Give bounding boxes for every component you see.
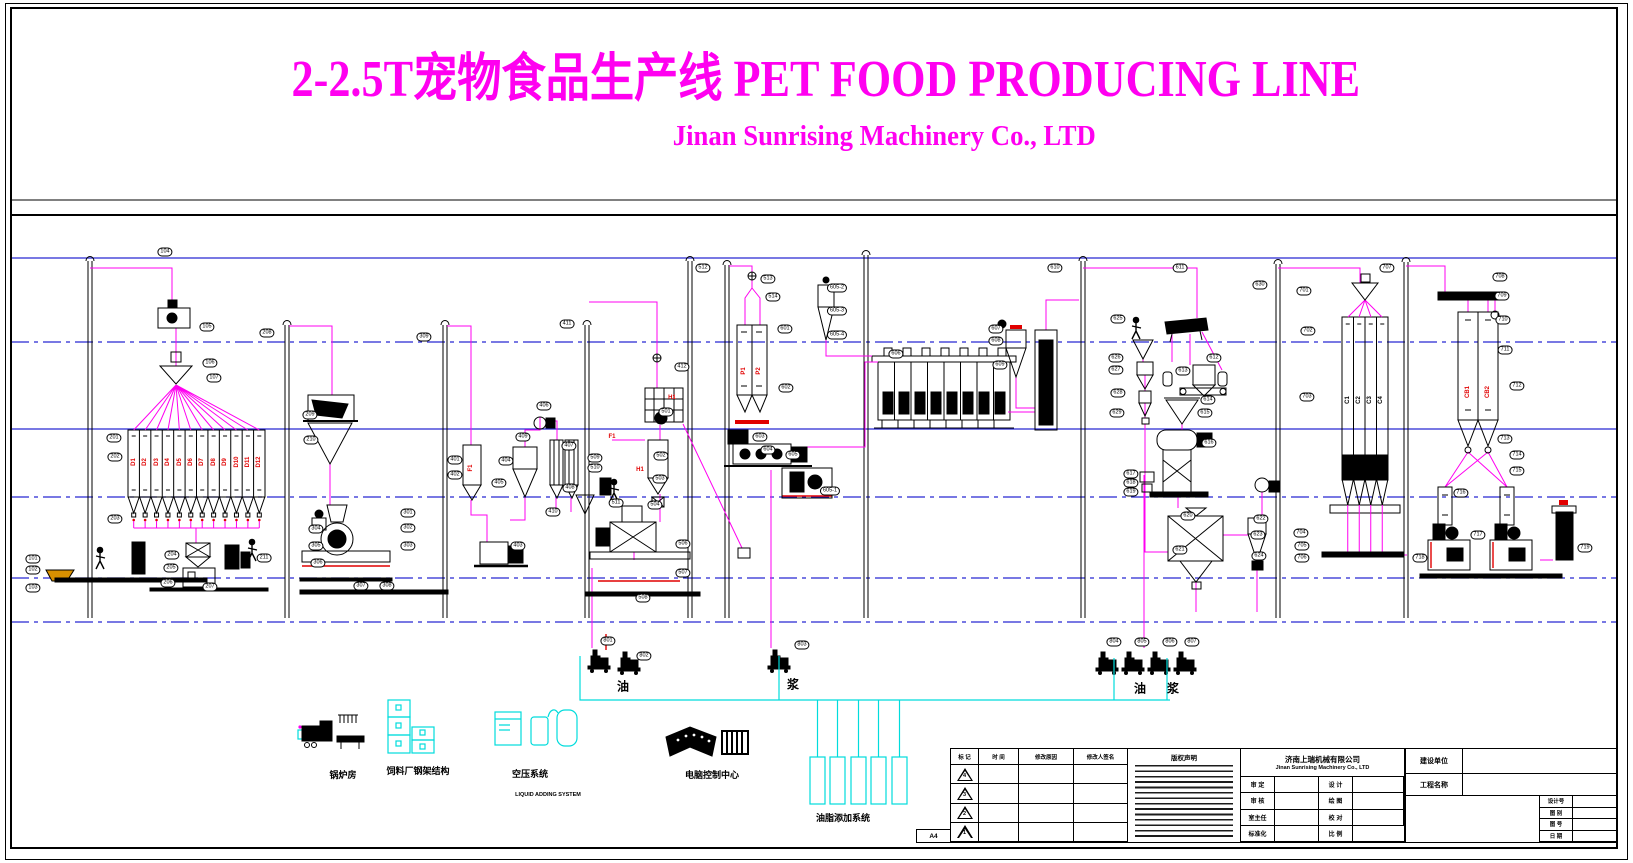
sign-value bbox=[1275, 810, 1319, 826]
rev-mark-cell: 3 bbox=[951, 784, 979, 803]
finished-packing-section bbox=[1322, 274, 1576, 578]
sign-value bbox=[1353, 793, 1404, 809]
info-value bbox=[1573, 831, 1616, 843]
rev-empty-cell bbox=[1019, 784, 1074, 803]
owner-label: 建设单位 bbox=[1406, 749, 1463, 774]
boiler-icon bbox=[302, 715, 364, 749]
company-name-en: Jinan Sunrising Machinery Co., LTD bbox=[1276, 765, 1370, 771]
rev-header: 标 记 bbox=[951, 749, 979, 765]
sign-label: 室主任 bbox=[1241, 810, 1275, 826]
liquid-pump bbox=[1122, 652, 1144, 675]
worker-figure bbox=[1132, 317, 1141, 339]
liquid-pump bbox=[588, 650, 610, 673]
sign-value bbox=[1353, 826, 1404, 842]
dryer-body bbox=[872, 348, 1016, 428]
info-label: 图 号 bbox=[1540, 819, 1573, 831]
info-label: 图 别 bbox=[1540, 808, 1573, 820]
rev-header: 修改人签名 bbox=[1074, 749, 1127, 765]
copyright-text-lines bbox=[1135, 765, 1233, 837]
liquid-pump bbox=[1174, 652, 1196, 675]
copyright-title: 版权声明 bbox=[1128, 752, 1240, 762]
worker-figure bbox=[248, 539, 257, 561]
sign-label: 审 核 bbox=[1241, 793, 1275, 809]
steel-structure-icon bbox=[388, 700, 434, 753]
project-value bbox=[1463, 774, 1616, 796]
company-name-cn: 济南上瑞机械有限公司 bbox=[1285, 754, 1360, 765]
rev-empty-cell bbox=[979, 765, 1019, 784]
rev-empty-cell bbox=[1074, 804, 1127, 823]
rev-mark-cell: 1 bbox=[951, 823, 979, 842]
cleaning-section bbox=[300, 395, 448, 594]
rev-empty-cell bbox=[1019, 765, 1074, 784]
coating-section bbox=[1133, 318, 1280, 589]
sign-value bbox=[1275, 826, 1319, 842]
drawing-area-cell bbox=[1406, 796, 1540, 842]
rev-empty-cell bbox=[1074, 784, 1127, 803]
rev-empty-cell bbox=[1074, 765, 1127, 784]
rev-empty-cell bbox=[979, 784, 1019, 803]
worker-figure bbox=[96, 547, 105, 569]
company-names: 济南上瑞机械有限公司 Jinan Sunrising Machinery Co.… bbox=[1241, 749, 1404, 777]
process-drawing bbox=[0, 0, 1633, 863]
sign-value bbox=[1275, 793, 1319, 809]
intake-section bbox=[46, 300, 268, 591]
rev-header: 修改原因 bbox=[1019, 749, 1074, 765]
dryer-section bbox=[998, 320, 1057, 430]
extrusion-section bbox=[724, 272, 834, 498]
rev-empty-cell bbox=[1019, 823, 1074, 842]
project-label: 工程名称 bbox=[1406, 774, 1463, 796]
project-block: 建设单位 工程名称 设计号图 别图 号日 期 bbox=[1405, 748, 1617, 843]
rev-mark-cell: 2 bbox=[951, 804, 979, 823]
info-label: 日 期 bbox=[1540, 831, 1573, 843]
copyright-notice: 版权声明 bbox=[1127, 748, 1241, 843]
info-value bbox=[1573, 796, 1616, 808]
sign-label: 比 例 bbox=[1319, 826, 1353, 842]
air-compressor-icon bbox=[495, 710, 577, 746]
sign-label: 校 对 bbox=[1319, 810, 1353, 826]
rev-empty-cell bbox=[979, 804, 1019, 823]
sign-value bbox=[1275, 777, 1319, 793]
rev-empty-cell bbox=[1019, 804, 1074, 823]
sheet-size-box: A4 bbox=[916, 829, 951, 843]
rev-empty-cell bbox=[979, 823, 1019, 842]
sign-label: 绘 图 bbox=[1319, 793, 1353, 809]
sign-label: 审 定 bbox=[1241, 777, 1275, 793]
liquid-system-lines bbox=[298, 656, 1170, 753]
dosing-silos bbox=[128, 317, 1400, 521]
liquid-pump bbox=[1096, 652, 1118, 675]
revision-table: 标 记时 间修改原因修改人签名4321 bbox=[950, 748, 1128, 843]
rev-empty-cell bbox=[1074, 823, 1127, 842]
rev-mark-cell: 4 bbox=[951, 765, 979, 784]
info-value bbox=[1573, 808, 1616, 820]
sign-label: 标准化 bbox=[1241, 826, 1275, 842]
sheet-frame bbox=[6, 4, 1628, 860]
drawing-sheet: 2-2.5T宠物食品生产线 PET FOOD PRODUCING LINE Ji… bbox=[0, 0, 1633, 863]
oil-tanks bbox=[810, 700, 907, 804]
sign-label: 设 计 bbox=[1319, 777, 1353, 793]
company-block: 济南上瑞机械有限公司 Jinan Sunrising Machinery Co.… bbox=[1240, 748, 1405, 843]
owner-value bbox=[1463, 749, 1616, 774]
drawing-info-table: 设计号图 别图 号日 期 bbox=[1540, 796, 1616, 842]
rev-header: 时 间 bbox=[979, 749, 1019, 765]
liquid-pump bbox=[618, 652, 640, 675]
equipment bbox=[46, 272, 1576, 756]
sign-value bbox=[1353, 810, 1404, 826]
sign-value bbox=[1353, 777, 1404, 793]
info-value bbox=[1573, 819, 1616, 831]
control-center-icon bbox=[666, 727, 748, 756]
signature-grid: 审 定设 计审 核绘 图室主任校 对标准化比 例 bbox=[1241, 777, 1404, 842]
info-label: 设计号 bbox=[1540, 796, 1573, 808]
